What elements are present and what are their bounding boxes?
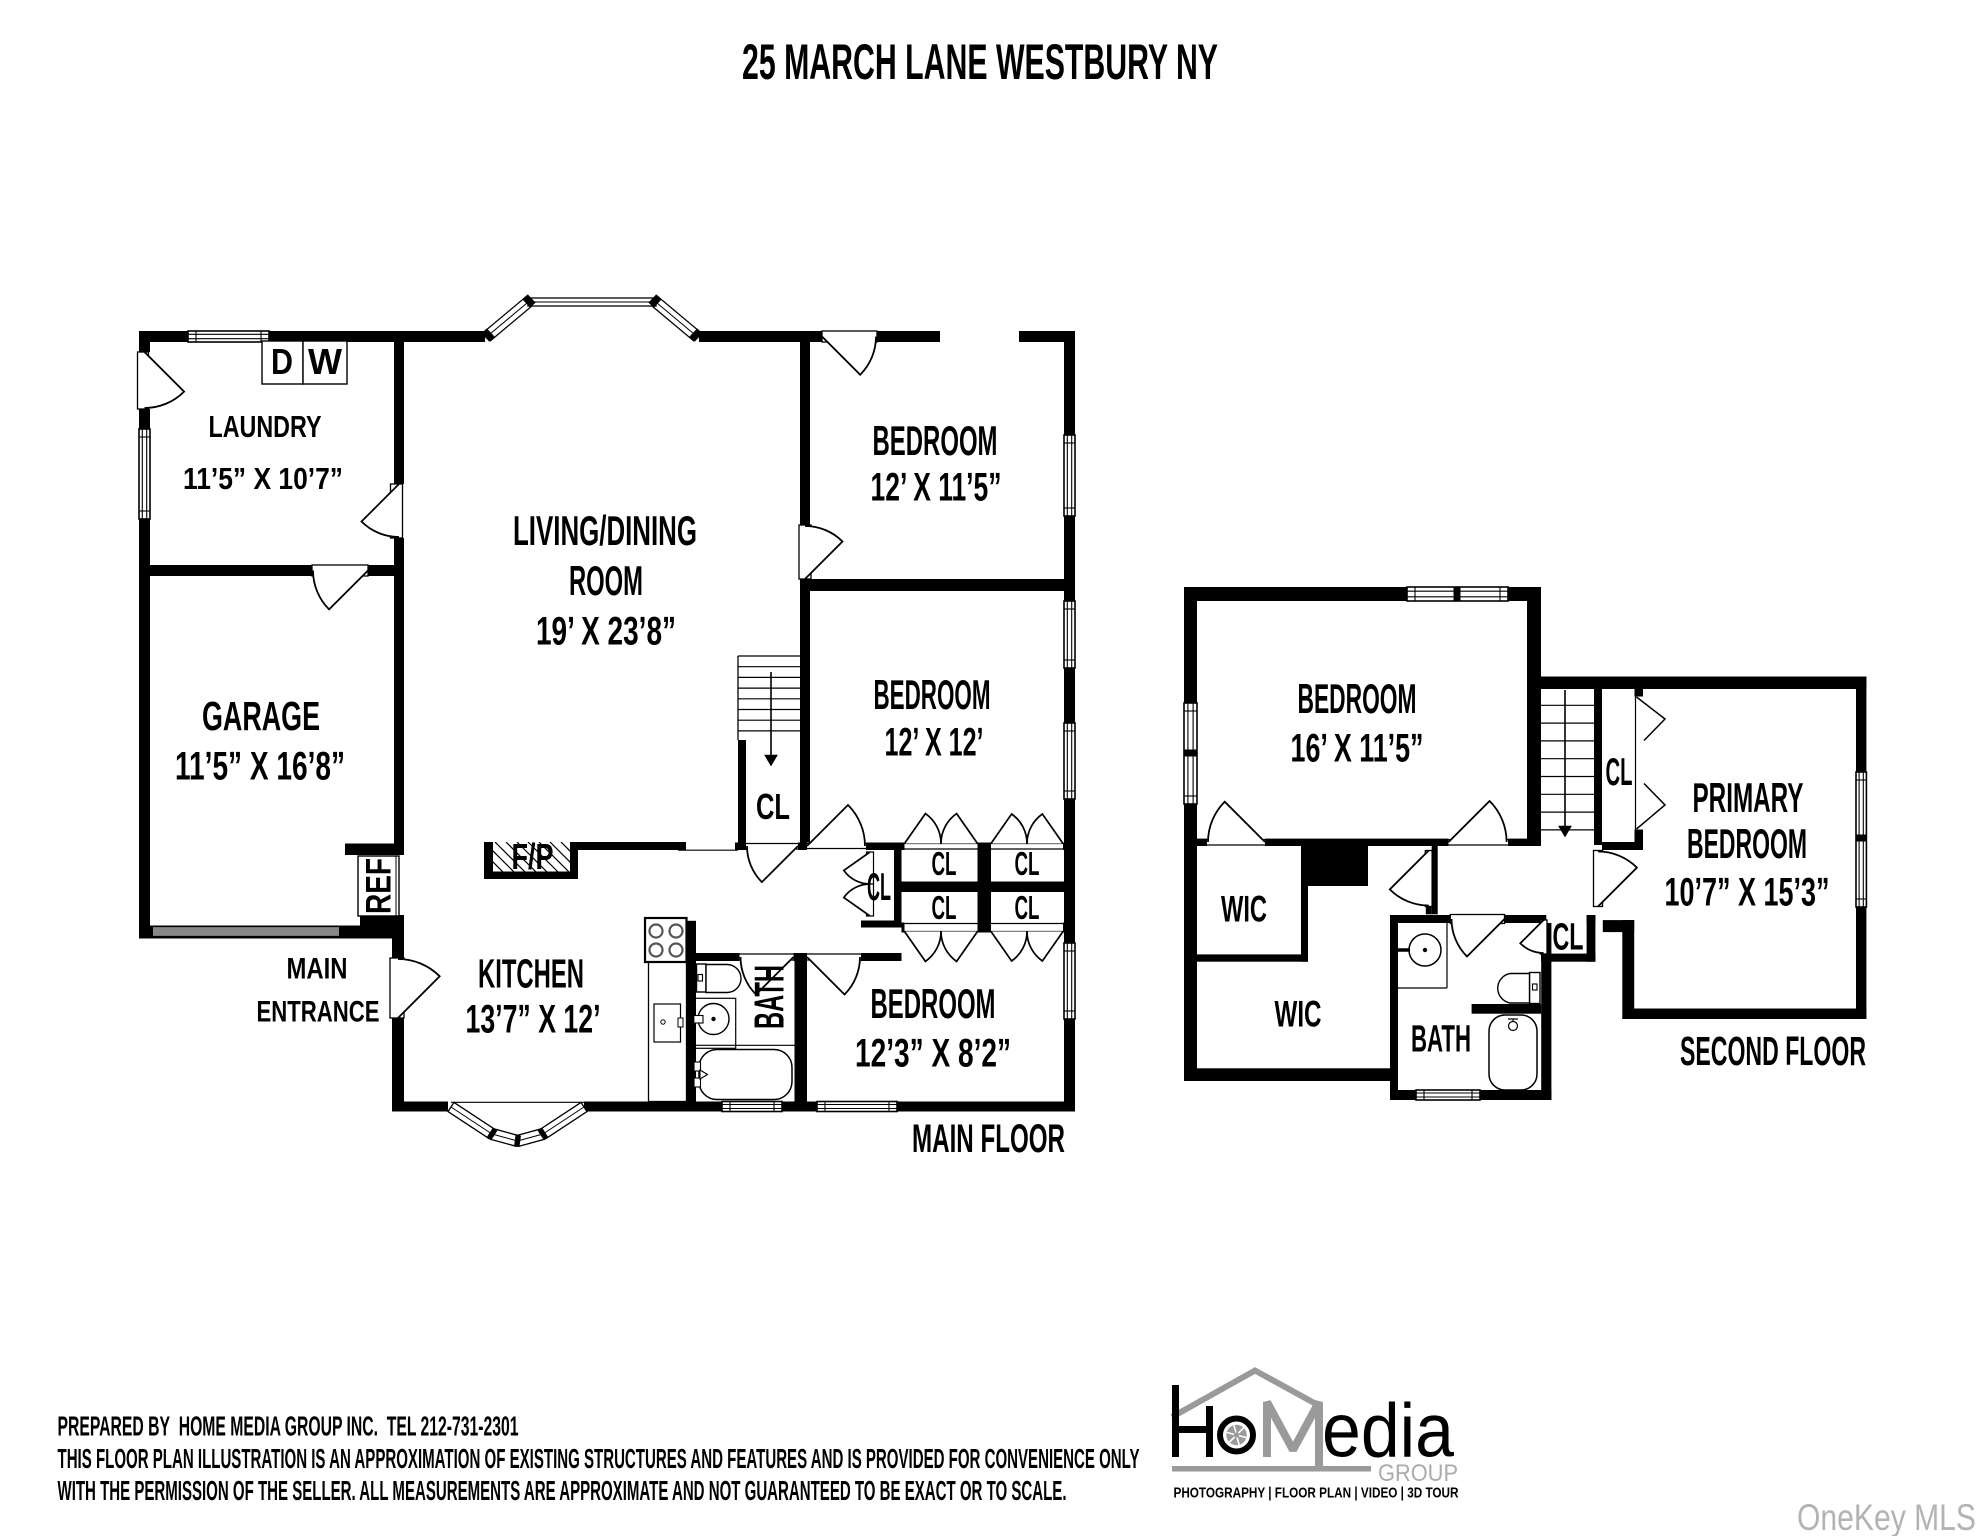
svg-text:BEDROOM: BEDROOM	[1687, 820, 1807, 867]
svg-text:11’5” X 16’8”: 11’5” X 16’8”	[175, 744, 345, 788]
svg-text:16’ X 11’5”: 16’ X 11’5”	[1291, 726, 1424, 770]
svg-text:CL: CL	[932, 890, 957, 927]
svg-text:19’ X 23’8”: 19’ X 23’8”	[536, 609, 676, 653]
svg-text:ENTRANCE: ENTRANCE	[257, 996, 380, 1029]
svg-text:WIC: WIC	[1221, 888, 1267, 929]
svg-text:BEDROOM: BEDROOM	[873, 417, 998, 464]
svg-text:12’ X 11’5”: 12’ X 11’5”	[871, 465, 1002, 509]
svg-text:CL: CL	[1015, 890, 1040, 927]
svg-text:BATH: BATH	[1411, 1018, 1471, 1060]
svg-text:11’5” X 10’7”: 11’5” X 10’7”	[183, 461, 343, 496]
svg-text:SECOND FLOOR: SECOND FLOOR	[1680, 1028, 1866, 1074]
svg-text:WIC: WIC	[1275, 993, 1322, 1034]
svg-text:CL: CL	[932, 846, 957, 883]
svg-text:LIVING/DINING: LIVING/DINING	[513, 507, 697, 554]
svg-text:GARAGE: GARAGE	[202, 693, 320, 739]
svg-text:ROOM: ROOM	[569, 557, 643, 604]
svg-text:MAIN FLOOR: MAIN FLOOR	[912, 1117, 1065, 1161]
svg-text:WITH THE PERMISSION OF THE SEL: WITH THE PERMISSION OF THE SELLER. ALL M…	[58, 1475, 1067, 1506]
svg-text:BEDROOM: BEDROOM	[874, 671, 991, 718]
svg-text:BATH: BATH	[746, 965, 793, 1029]
svg-text:OneKey MLS: OneKey MLS	[1797, 1497, 1976, 1536]
svg-text:MAIN: MAIN	[287, 953, 348, 986]
svg-text:D: D	[271, 341, 293, 382]
svg-text:PHOTOGRAPHY | FLOOR PLAN | VID: PHOTOGRAPHY | FLOOR PLAN | VIDEO | 3D TO…	[1174, 1486, 1459, 1502]
svg-text:10’7” X 15’3”: 10’7” X 15’3”	[1665, 870, 1830, 914]
svg-text:REF: REF	[360, 858, 399, 914]
svg-text:LAUNDRY: LAUNDRY	[209, 409, 322, 444]
svg-text:12’ X 12’: 12’ X 12’	[885, 720, 984, 764]
svg-text:CL: CL	[867, 866, 891, 909]
svg-text:25 MARCH LANE WESTBURY NY: 25 MARCH LANE WESTBURY NY	[742, 33, 1218, 90]
svg-text:F/P: F/P	[512, 836, 554, 877]
svg-text:CL: CL	[1606, 751, 1633, 794]
svg-text:CL: CL	[756, 786, 790, 827]
svg-text:THIS FLOOR PLAN ILLUSTRATION I: THIS FLOOR PLAN ILLUSTRATION IS AN APPRO…	[58, 1443, 1140, 1474]
svg-text:BEDROOM: BEDROOM	[1298, 675, 1417, 722]
svg-text:BEDROOM: BEDROOM	[871, 980, 996, 1027]
svg-text:GROUP: GROUP	[1378, 1461, 1458, 1487]
svg-text:KITCHEN: KITCHEN	[478, 951, 584, 997]
svg-text:PRIMARY: PRIMARY	[1693, 774, 1804, 821]
svg-text:13’7” X 12’: 13’7” X 12’	[466, 997, 601, 1041]
svg-text:CL: CL	[1015, 846, 1040, 883]
svg-text:CL: CL	[1553, 916, 1584, 958]
svg-text:W: W	[308, 341, 343, 382]
svg-text:PREPARED BY HOME MEDIA GROUP: PREPARED BY HOME MEDIA GROUP INC. TEL 21…	[58, 1411, 519, 1442]
svg-text:12’3” X 8’2”: 12’3” X 8’2”	[855, 1031, 1011, 1075]
